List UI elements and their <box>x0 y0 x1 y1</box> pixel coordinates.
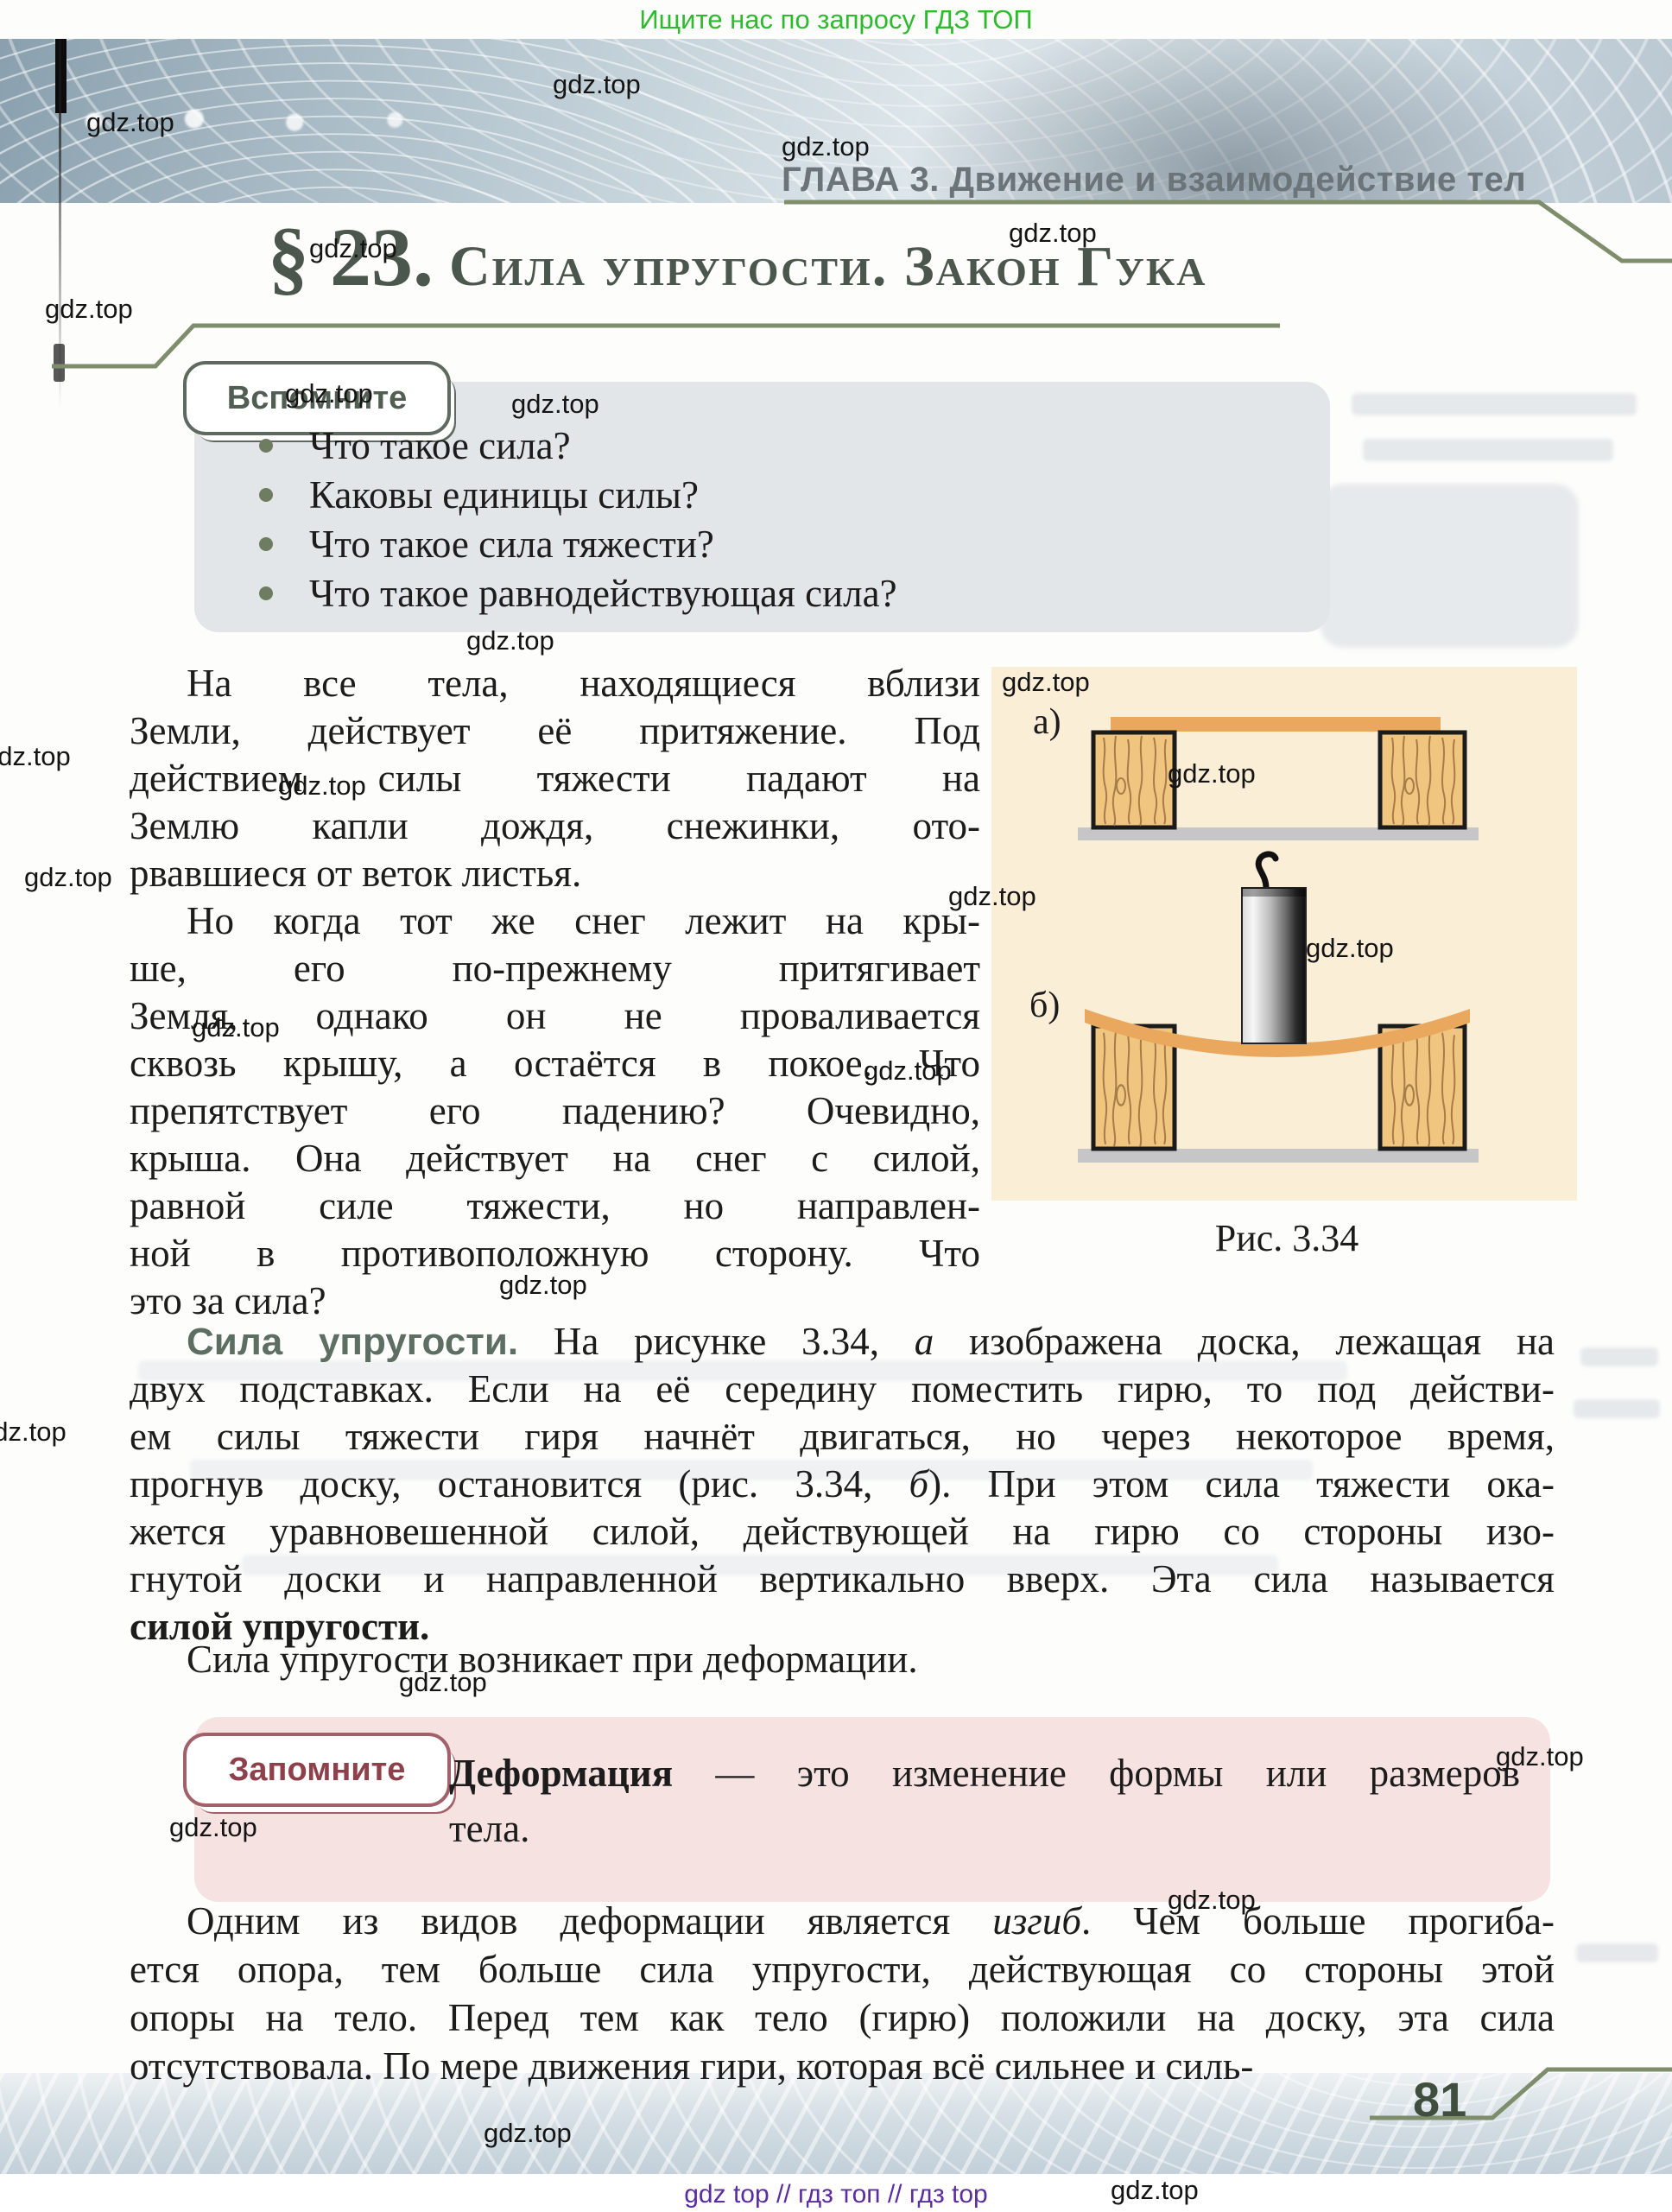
body-column-wide: Сила упругости. На рисунке 3.34, а изобр… <box>130 1318 1555 1651</box>
figure-label-b: б) <box>1029 985 1060 1026</box>
text-fragment: ). При этом сила тяжести ока- <box>928 1462 1555 1505</box>
figure-3-34 <box>991 667 1577 1201</box>
text-fragment: изображена доска, лежащая на <box>934 1320 1555 1363</box>
text-line: ется опора, тем больше сила упругости, д… <box>130 1945 1555 1993</box>
watermark-text: gdz.top <box>864 1055 952 1087</box>
text-line: жется уравновешенной силой, действующей … <box>130 1508 1555 1556</box>
text-line: гнутой доски и направленной вертикально … <box>130 1556 1555 1603</box>
bullet-icon <box>259 586 273 600</box>
text-fragment-italic: изгиб <box>992 1899 1081 1943</box>
watermark-text: gdz.top <box>511 389 599 420</box>
question-text: Что такое равнодействующая сила? <box>309 572 897 615</box>
list-item: Что такое равнодействующая сила? <box>259 569 1313 618</box>
watermark-text: gdz.top <box>169 1812 257 1843</box>
watermark-text: gdz.top <box>285 378 373 409</box>
watermark-text: gdz.top <box>1496 1741 1584 1772</box>
watermark-text: gdz.top <box>1111 2175 1199 2206</box>
watermark-text: gdz.top <box>1168 1885 1256 1916</box>
text-line: Сила упругости. На рисунке 3.34, а изобр… <box>130 1318 1555 1366</box>
text-line: Сила упругости возникает при деформации. <box>130 1636 1612 1683</box>
paragraph-lead: Сила упругости. <box>187 1321 518 1363</box>
watermark-text: gdz.top <box>192 1012 280 1043</box>
watermark-text: gdz.top <box>499 1270 587 1301</box>
support-block <box>1093 732 1175 827</box>
board-straight <box>1111 717 1441 732</box>
text-line: Но когда тот же снег лежит на кры- <box>130 897 980 945</box>
watermark-text: gdz.top <box>24 862 112 893</box>
watermark-text: gdz.top <box>399 1667 487 1698</box>
recall-question-list: Что такое сила? Каковы единицы силы? Что… <box>259 421 1313 618</box>
text-line: крыша. Она действует на снег с силой, <box>130 1135 980 1182</box>
watermark-text: gdz.top <box>309 233 397 264</box>
text-line: опоры на тело. Перед тем как тело (гирю)… <box>130 1993 1555 2042</box>
list-item: Каковы единицы силы? <box>259 471 1313 520</box>
watermark-text: gdz.top <box>782 131 870 162</box>
watermark-text: gdz.top <box>1009 218 1097 249</box>
question-text: Что такое сила тяжести? <box>309 523 714 566</box>
definition-line: тела. <box>449 1805 1520 1853</box>
text-fragment: Одним из видов деформации является <box>187 1899 992 1943</box>
body-column-bottom: Одним из видов деформации является изгиб… <box>130 1897 1555 2090</box>
watermark-text: gdz.top <box>466 625 554 656</box>
figure-label-a: а) <box>1033 701 1061 743</box>
watermark-text: gdz.top <box>948 881 1036 912</box>
figure-caption: Рис. 3.34 <box>1088 1216 1485 1260</box>
support-block <box>1380 732 1465 827</box>
question-text: Каковы единицы силы? <box>309 473 699 517</box>
watermark-text: gdz.top <box>86 107 174 138</box>
text-line: равной силе тяжести, но направлен- <box>130 1182 980 1230</box>
bullet-icon <box>259 439 273 453</box>
text-line: рвавшиеся от веток листья. <box>130 850 980 897</box>
term: Деформация <box>449 1752 673 1795</box>
text-line: Землю капли дождя, снежинки, ото- <box>130 802 980 850</box>
text-line: сквозь крышу, а остаётся в покое. Что <box>130 1040 980 1087</box>
remember-badge: Запомните <box>183 1733 451 1807</box>
chapter-header: ГЛАВА 3. Движение и взаимодействие тел <box>782 161 1526 200</box>
text-line: препятствует его падению? Очевидно, <box>130 1087 980 1135</box>
text-fragment: . Чем больше прогиба- <box>1081 1899 1555 1943</box>
watermark-text: gdz.top <box>1168 758 1256 789</box>
definition-text: — это изменение формы или размеров <box>673 1752 1520 1795</box>
text-fragment-italic: а <box>915 1320 934 1363</box>
text-line: отсутствовала. По мере движения гири, ко… <box>130 2042 1555 2090</box>
watermark-text: gdz.top <box>45 294 133 325</box>
definition-line: Деформация — это изменение формы или раз… <box>449 1750 1520 1797</box>
textbook-page: Ищите нас по запросу ГДЗ ТОП ГЛАВА 3. Дв… <box>0 0 1672 2212</box>
bullet-icon <box>259 537 273 551</box>
question-text: Что такое сила? <box>309 424 571 467</box>
page-number: 81 <box>1413 2071 1466 2127</box>
text-fragment: На рисунке 3.34, <box>518 1320 915 1363</box>
text-line: ем силы тяжести гиря начнёт двигаться, н… <box>130 1413 1555 1461</box>
list-item: Что такое сила? <box>259 421 1313 471</box>
text-line: действием силы тяжести падают на <box>130 755 980 802</box>
bullet-icon <box>259 488 273 502</box>
list-item: Что такое сила тяжести? <box>259 520 1313 569</box>
text-line: прогнув доску, остановится (рис. 3.34, б… <box>130 1461 1555 1508</box>
body-column-narrow: На все тела, находящиеся вблизи Земли, д… <box>130 660 980 1325</box>
watermark-text: gdz.top <box>0 741 71 772</box>
watermark-text: gdz.top <box>484 2118 572 2149</box>
watermark-text: gdz.top <box>278 770 366 802</box>
text-line: На все тела, находящиеся вблизи <box>130 660 980 707</box>
footer-watermark: gdz top // гдз топ // гдз top <box>0 2180 1672 2209</box>
text-line: ше, его по-прежнему притягивает <box>130 945 980 992</box>
watermark-text: gdz.top <box>0 1417 66 1448</box>
text-line: Земли, действует её притяжение. Под <box>130 707 980 755</box>
text-fragment: прогнув доску, остановится (рис. 3.34, <box>130 1462 909 1505</box>
watermark-text: gdz.top <box>1002 667 1090 698</box>
text-line: двух подставках. Если на её середину пом… <box>130 1366 1555 1413</box>
text-fragment-italic: б <box>909 1462 929 1505</box>
watermark-text: gdz.top <box>1306 933 1394 964</box>
text-line: Одним из видов деформации является изгиб… <box>130 1897 1555 1945</box>
watermark-text: gdz.top <box>553 69 641 100</box>
